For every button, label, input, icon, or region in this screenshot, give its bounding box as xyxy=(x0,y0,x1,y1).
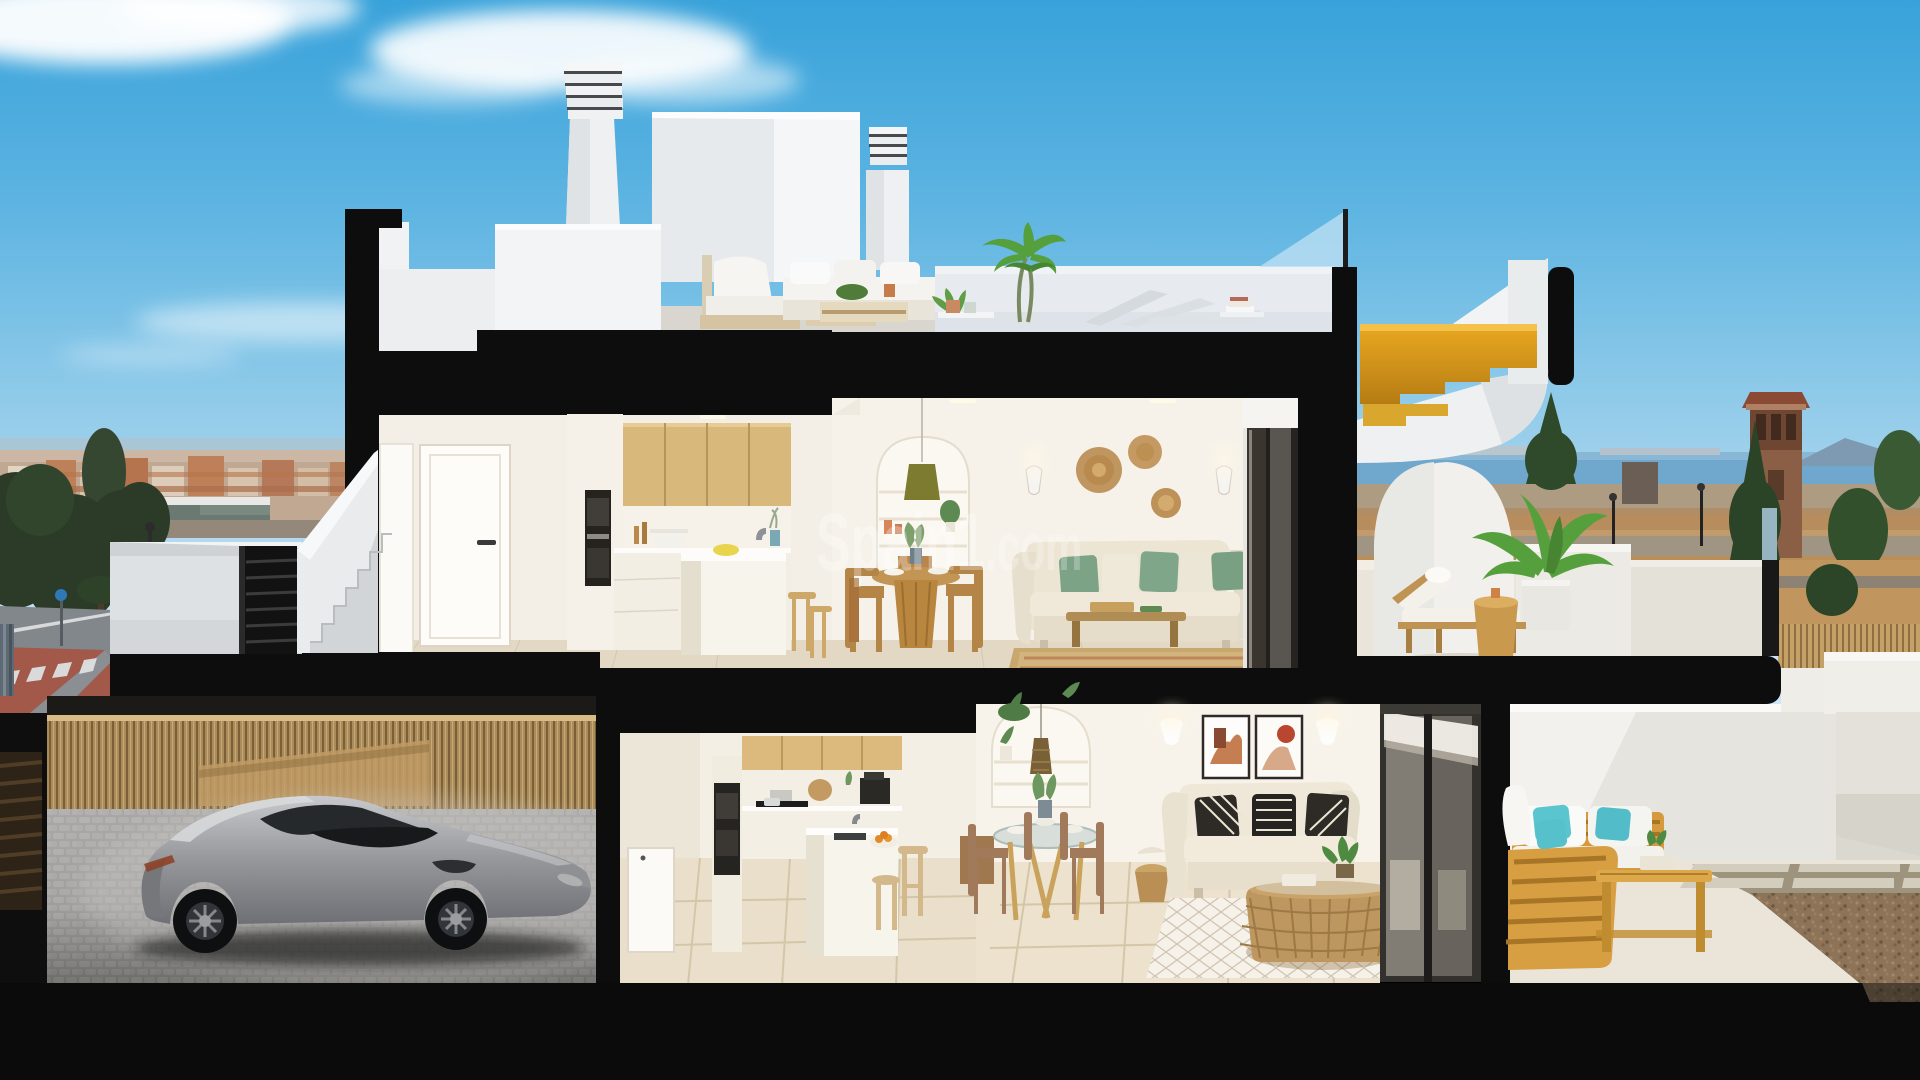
svg-text:Spain1.com: Spain1.com xyxy=(816,496,1082,588)
